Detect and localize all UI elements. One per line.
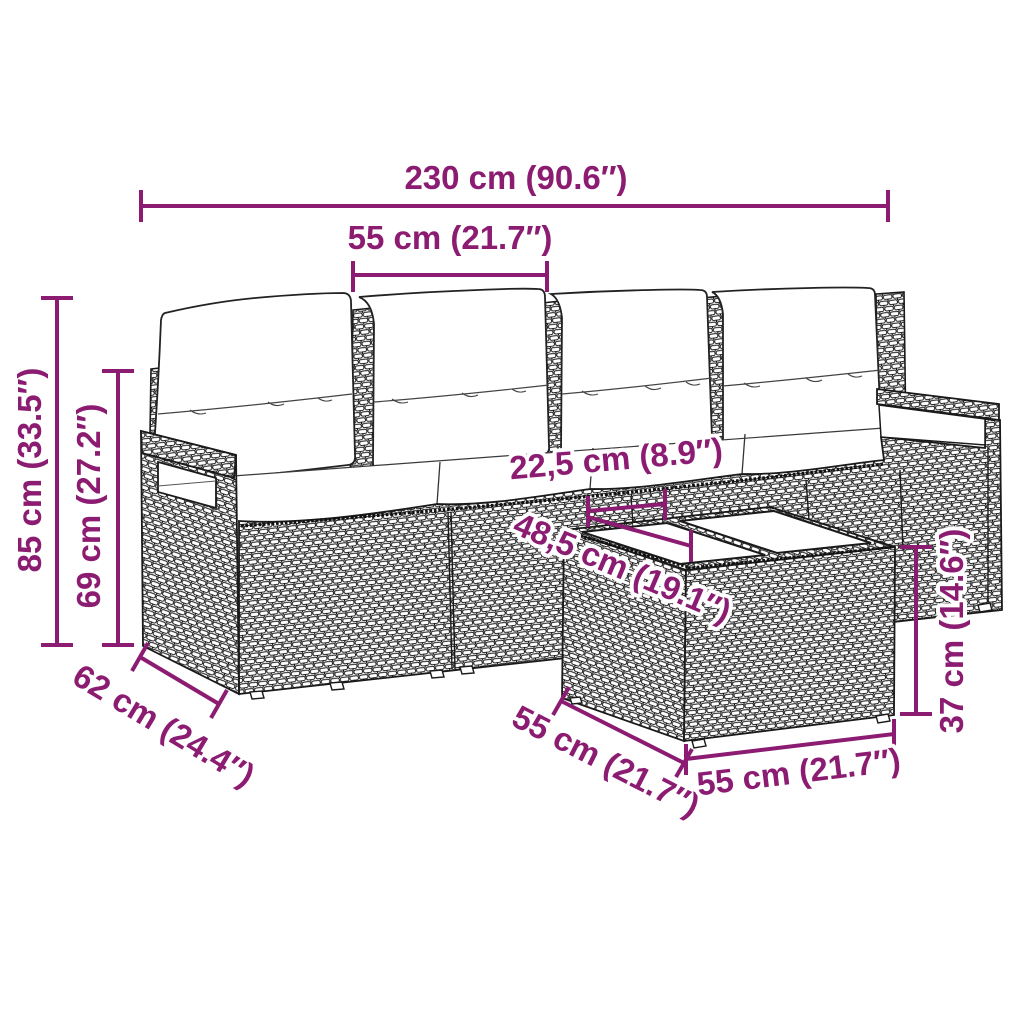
svg-text:69 cm (27.2″): 69 cm (27.2″): [70, 404, 107, 609]
svg-text:230 cm (90.6″): 230 cm (90.6″): [404, 159, 627, 196]
svg-text:85 cm (33.5″): 85 cm (33.5″): [11, 368, 48, 573]
svg-text:37 cm (14.6″): 37 cm (14.6″): [933, 529, 970, 734]
svg-text:55 cm (21.7″): 55 cm (21.7″): [348, 219, 553, 256]
